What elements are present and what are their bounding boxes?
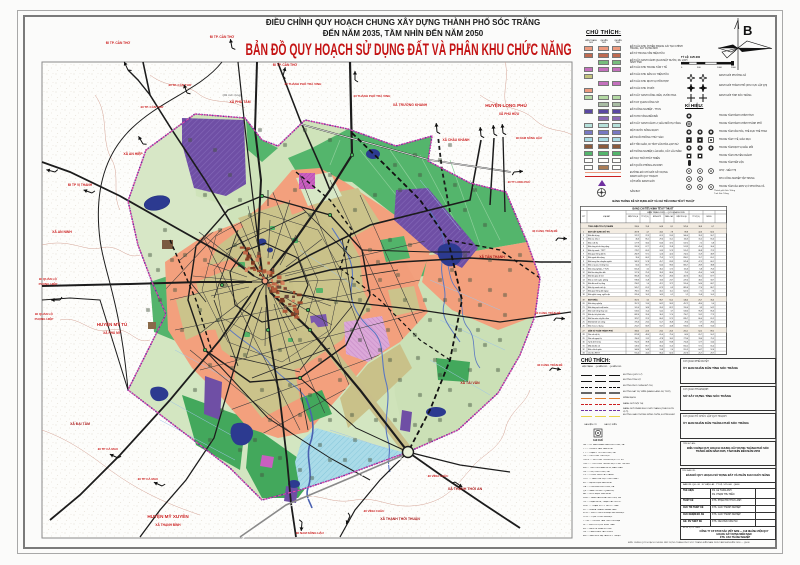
svg-text:66,1: 66,1 bbox=[711, 261, 715, 263]
svg-text:ĐI TP. CẦN THƠ: ĐI TP. CẦN THƠ bbox=[273, 63, 298, 67]
svg-text:23: 23 bbox=[582, 314, 584, 316]
svg-text:ĐI NAM SÔNG HẬU: ĐI NAM SÔNG HẬU bbox=[516, 135, 542, 140]
svg-text:72,5: 72,5 bbox=[711, 250, 715, 252]
svg-text:97,1: 97,1 bbox=[646, 254, 650, 256]
svg-text:M2/NG: M2/NG bbox=[706, 216, 712, 218]
svg-text:159,0: 159,0 bbox=[684, 307, 689, 309]
svg-text:515,2: 515,2 bbox=[684, 250, 689, 252]
svg-text:83,3: 83,3 bbox=[670, 261, 674, 263]
svg-text:86,4: 86,4 bbox=[670, 272, 674, 274]
svg-text:98,3: 98,3 bbox=[670, 303, 674, 305]
svg-text:69,1: 69,1 bbox=[711, 257, 715, 259]
svg-text:10: 10 bbox=[582, 265, 584, 267]
svg-text:64,7: 64,7 bbox=[699, 349, 703, 351]
svg-text:22,6: 22,6 bbox=[646, 331, 650, 333]
svg-text:97,5: 97,5 bbox=[670, 318, 674, 320]
svg-text:1,4: 1,4 bbox=[647, 283, 650, 285]
svg-text:28,3: 28,3 bbox=[670, 276, 674, 278]
svg-text:205,4: 205,4 bbox=[635, 294, 640, 296]
svg-text:ĐI TP VỊ THANH: ĐI TP VỊ THANH bbox=[68, 183, 93, 187]
svg-text:42,0: 42,0 bbox=[670, 254, 674, 256]
svg-text:ĐI CẢNG TRẦN ĐỀ: ĐI CẢNG TRẦN ĐỀ bbox=[535, 310, 560, 315]
svg-text:26,9: 26,9 bbox=[660, 307, 664, 309]
svg-text:82,0: 82,0 bbox=[670, 353, 674, 355]
svg-text:57,2: 57,2 bbox=[670, 257, 674, 259]
svg-text:XÃ PHÚ HỮU: XÃ PHÚ HỮU bbox=[499, 111, 520, 116]
svg-text:47,8: 47,8 bbox=[660, 338, 664, 340]
svg-text:89,7: 89,7 bbox=[646, 345, 650, 347]
svg-text:26,6: 26,6 bbox=[646, 314, 650, 316]
svg-text:Đất an ninh quốc phòng: Đất an ninh quốc phòng bbox=[588, 278, 608, 281]
svg-text:25: 25 bbox=[582, 322, 584, 324]
svg-text:68,9: 68,9 bbox=[646, 325, 650, 327]
svg-text:7,1: 7,1 bbox=[700, 291, 703, 293]
svg-text:39,8: 39,8 bbox=[646, 342, 650, 344]
svg-text:ĐI THÀNH PHỐ TRÀ VINH: ĐI THÀNH PHỐ TRÀ VINH bbox=[285, 81, 322, 86]
svg-text:407,6: 407,6 bbox=[684, 276, 689, 278]
svg-text:81,3: 81,3 bbox=[646, 276, 650, 278]
svg-text:7,2: 7,2 bbox=[700, 242, 703, 244]
svg-text:86,4: 86,4 bbox=[660, 353, 664, 355]
svg-text:805,7: 805,7 bbox=[684, 265, 689, 267]
svg-text:HUYỆN MỸ TÚ: HUYỆN MỸ TÚ bbox=[97, 322, 127, 327]
svg-text:6,8: 6,8 bbox=[712, 242, 715, 244]
svg-text:89,8: 89,8 bbox=[685, 231, 689, 233]
svg-text:46,2: 46,2 bbox=[660, 268, 664, 270]
svg-text:207,6: 207,6 bbox=[684, 353, 689, 355]
svg-text:24,9: 24,9 bbox=[660, 250, 664, 252]
svg-text:865,8: 865,8 bbox=[635, 276, 640, 278]
svg-text:3,5: 3,5 bbox=[647, 299, 650, 301]
svg-text:64,4: 64,4 bbox=[660, 265, 664, 267]
svg-text:69,7: 69,7 bbox=[646, 265, 650, 267]
svg-text:48,4: 48,4 bbox=[699, 303, 703, 305]
svg-text:655,6: 655,6 bbox=[635, 268, 640, 270]
svg-text:85,1: 85,1 bbox=[646, 239, 650, 241]
svg-text:(đã mở rộng): (đã mở rộng) bbox=[223, 93, 242, 97]
svg-text:PHỤNG HIỆP: PHỤNG HIỆP bbox=[39, 281, 58, 286]
svg-text:6,2: 6,2 bbox=[671, 294, 674, 296]
svg-text:ĐI VĨNH CHÂU: ĐI VĨNH CHÂU bbox=[364, 508, 385, 513]
svg-text:94,6: 94,6 bbox=[711, 325, 715, 327]
svg-text:36,2: 36,2 bbox=[699, 276, 703, 278]
svg-text:77,4: 77,4 bbox=[699, 287, 703, 289]
svg-text:13,4: 13,4 bbox=[711, 342, 715, 344]
svg-text:938,6: 938,6 bbox=[635, 279, 640, 281]
svg-text:37,5: 37,5 bbox=[670, 242, 674, 244]
svg-text:ĐẤT XÂY DỰNG ĐÔ THỊ: ĐẤT XÂY DỰNG ĐÔ THỊ bbox=[588, 230, 610, 233]
svg-text:43,5: 43,5 bbox=[646, 353, 650, 355]
svg-text:ĐẤT KHÁC: ĐẤT KHÁC bbox=[588, 298, 599, 301]
svg-text:94,4: 94,4 bbox=[699, 283, 703, 285]
svg-text:17,7: 17,7 bbox=[699, 342, 703, 344]
svg-text:39,3: 39,3 bbox=[660, 272, 664, 274]
svg-text:622,0: 622,0 bbox=[684, 291, 689, 293]
svg-text:45,0: 45,0 bbox=[699, 272, 703, 274]
svg-text:229,4: 229,4 bbox=[684, 279, 689, 281]
svg-text:127,6: 127,6 bbox=[635, 272, 640, 274]
svg-text:30,4: 30,4 bbox=[711, 246, 715, 248]
svg-text:15: 15 bbox=[582, 283, 584, 285]
svg-text:ĐI CẢNG TRẦN ĐỀ: ĐI CẢNG TRẦN ĐỀ bbox=[537, 362, 562, 367]
svg-text:918,3: 918,3 bbox=[684, 325, 689, 327]
svg-text:STT: STT bbox=[582, 216, 585, 218]
svg-text:357,0: 357,0 bbox=[635, 299, 640, 301]
svg-text:62,2: 62,2 bbox=[699, 331, 703, 333]
svg-text:12,6: 12,6 bbox=[660, 254, 664, 256]
svg-text:17: 17 bbox=[582, 291, 584, 293]
svg-text:29,4: 29,4 bbox=[685, 322, 689, 324]
svg-text:20: 20 bbox=[582, 303, 584, 305]
svg-text:Đất cây xanh - TDTT: Đất cây xanh - TDTT bbox=[588, 249, 606, 252]
svg-text:725,3: 725,3 bbox=[635, 322, 640, 324]
svg-text:35,8: 35,8 bbox=[670, 322, 674, 324]
svg-text:39,5: 39,5 bbox=[646, 291, 650, 293]
svg-text:15,1: 15,1 bbox=[670, 239, 674, 241]
svg-text:84,2: 84,2 bbox=[660, 303, 664, 305]
svg-text:915,0: 915,0 bbox=[635, 353, 640, 355]
svg-text:7,8: 7,8 bbox=[671, 231, 674, 233]
svg-text:835,7: 835,7 bbox=[684, 318, 689, 320]
svg-text:254,7: 254,7 bbox=[635, 325, 640, 327]
svg-text:773,6: 773,6 bbox=[684, 338, 689, 340]
svg-text:ĐI CẢNG TRẦN ĐỀ: ĐI CẢNG TRẦN ĐỀ bbox=[532, 228, 557, 233]
svg-text:756,7: 756,7 bbox=[684, 314, 689, 316]
svg-text:48,9: 48,9 bbox=[711, 254, 715, 256]
svg-text:ĐI VĨNH CHÂU: ĐI VĨNH CHÂU bbox=[428, 473, 449, 478]
svg-text:40,3: 40,3 bbox=[660, 342, 664, 344]
svg-text:4: 4 bbox=[583, 242, 584, 244]
svg-text:201,1: 201,1 bbox=[684, 331, 689, 333]
svg-text:782,1: 782,1 bbox=[635, 291, 640, 293]
svg-text:93,8: 93,8 bbox=[670, 342, 674, 344]
svg-text:87,7: 87,7 bbox=[711, 276, 715, 278]
svg-text:3,7: 3,7 bbox=[700, 322, 703, 324]
svg-text:823,8: 823,8 bbox=[635, 334, 640, 336]
svg-text:505,7: 505,7 bbox=[635, 287, 640, 289]
svg-text:15,8: 15,8 bbox=[646, 226, 650, 228]
svg-text:8,1: 8,1 bbox=[671, 226, 674, 228]
svg-text:48,5: 48,5 bbox=[699, 279, 703, 281]
svg-text:742,2: 742,2 bbox=[684, 254, 689, 256]
svg-text:Đất nông nghiệp: Đất nông nghiệp bbox=[588, 302, 602, 305]
svg-text:35,0: 35,0 bbox=[711, 299, 715, 301]
svg-text:44,8: 44,8 bbox=[670, 325, 674, 327]
svg-text:582,9: 582,9 bbox=[635, 261, 640, 263]
svg-text:29: 29 bbox=[582, 338, 584, 340]
svg-text:881,6: 881,6 bbox=[684, 287, 689, 289]
svg-text:Đất sông rạch mặt nước: Đất sông rạch mặt nước bbox=[588, 306, 609, 309]
svg-text:33: 33 bbox=[582, 353, 584, 355]
svg-text:53,2: 53,2 bbox=[699, 314, 703, 316]
svg-text:2: 2 bbox=[583, 235, 584, 237]
svg-text:XÃ TÂN THẠNH: XÃ TÂN THẠNH bbox=[479, 254, 505, 259]
svg-text:ĐI TP. CẦN THƠ: ĐI TP. CẦN THƠ bbox=[169, 83, 192, 87]
svg-text:344,0: 344,0 bbox=[635, 349, 640, 351]
svg-text:96,9: 96,9 bbox=[699, 311, 703, 313]
svg-text:PHỤNG HIỆP: PHỤNG HIỆP bbox=[35, 316, 54, 321]
svg-text:63,6: 63,6 bbox=[660, 242, 664, 244]
svg-text:66,5: 66,5 bbox=[646, 257, 650, 259]
svg-text:33,6: 33,6 bbox=[699, 338, 703, 340]
svg-text:75,9: 75,9 bbox=[660, 257, 664, 259]
svg-text:15,3: 15,3 bbox=[670, 345, 674, 347]
svg-text:85,7: 85,7 bbox=[660, 276, 664, 278]
svg-text:40,1: 40,1 bbox=[660, 291, 664, 293]
svg-text:42,6: 42,6 bbox=[699, 231, 703, 233]
svg-text:58,0: 58,0 bbox=[646, 242, 650, 244]
svg-text:Mật độ dân số: Mật độ dân số bbox=[588, 344, 601, 347]
svg-text:Đất các khu ở: Đất các khu ở bbox=[588, 238, 601, 241]
svg-text:20,3: 20,3 bbox=[670, 331, 674, 333]
svg-text:10,9: 10,9 bbox=[711, 294, 715, 296]
svg-text:22: 22 bbox=[582, 311, 584, 313]
svg-text:Đất kho tàng bến bãi: Đất kho tàng bến bãi bbox=[588, 271, 606, 274]
svg-text:97,1: 97,1 bbox=[699, 345, 703, 347]
svg-text:80,0: 80,0 bbox=[660, 345, 664, 347]
svg-text:500: 500 bbox=[697, 67, 701, 68]
svg-text:146,4: 146,4 bbox=[684, 299, 689, 301]
svg-text:25,7: 25,7 bbox=[699, 299, 703, 301]
svg-text:47,5: 47,5 bbox=[699, 261, 703, 263]
svg-text:39,9: 39,9 bbox=[699, 235, 703, 237]
svg-text:74,5: 74,5 bbox=[646, 338, 650, 340]
svg-text:15,4: 15,4 bbox=[646, 311, 650, 313]
svg-text:29,4: 29,4 bbox=[660, 239, 664, 241]
svg-text:11,1: 11,1 bbox=[670, 291, 673, 293]
svg-text:28,4: 28,4 bbox=[711, 322, 715, 324]
svg-text:81,2: 81,2 bbox=[711, 318, 715, 320]
svg-text:17,5: 17,5 bbox=[670, 268, 674, 270]
svg-text:525,6: 525,6 bbox=[684, 226, 689, 228]
svg-text:81,0: 81,0 bbox=[711, 239, 715, 241]
svg-text:79,4: 79,4 bbox=[670, 334, 674, 336]
svg-text:682,6: 682,6 bbox=[635, 314, 640, 316]
svg-text:13: 13 bbox=[582, 276, 584, 278]
svg-text:HUYỆN LONG PHÚ: HUYỆN LONG PHÚ bbox=[485, 101, 527, 108]
svg-text:Dân số ngoại thị: Dân số ngoại thị bbox=[588, 337, 602, 340]
svg-text:7,6: 7,6 bbox=[712, 291, 715, 293]
svg-text:XÃ CHÂU KHÁNH: XÃ CHÂU KHÁNH bbox=[443, 137, 471, 142]
svg-text:XÃ THẠNH THỚI THUẬN: XÃ THẠNH THỚI THUẬN bbox=[380, 516, 420, 521]
svg-text:28,9: 28,9 bbox=[699, 265, 703, 267]
svg-text:80,5: 80,5 bbox=[660, 318, 664, 320]
svg-text:ĐI TP CÀ MAU: ĐI TP CÀ MAU bbox=[98, 446, 118, 451]
svg-text:13,0: 13,0 bbox=[646, 303, 650, 305]
svg-text:7: 7 bbox=[583, 254, 584, 256]
svg-text:6: 6 bbox=[583, 250, 584, 252]
svg-text:Đất dự trữ phát triển: Đất dự trữ phát triển bbox=[588, 313, 605, 316]
svg-text:XÃ THẠNH BÌNH: XÃ THẠNH BÌNH bbox=[155, 522, 181, 527]
svg-text:58,7: 58,7 bbox=[711, 279, 715, 281]
svg-text:65,4: 65,4 bbox=[711, 345, 715, 347]
svg-text:25,7: 25,7 bbox=[699, 353, 703, 355]
svg-text:518,0: 518,0 bbox=[684, 311, 689, 313]
svg-text:12: 12 bbox=[582, 272, 584, 274]
svg-text:18: 18 bbox=[582, 294, 584, 296]
svg-text:16,9: 16,9 bbox=[646, 294, 650, 296]
svg-text:79,5: 79,5 bbox=[711, 338, 715, 340]
svg-text:566,0: 566,0 bbox=[684, 235, 689, 237]
svg-text:37,2: 37,2 bbox=[670, 283, 674, 285]
svg-text:Dân số nội thị: Dân số nội thị bbox=[588, 333, 600, 336]
svg-text:925,8: 925,8 bbox=[684, 261, 689, 263]
svg-text:26: 26 bbox=[582, 325, 584, 327]
svg-text:1: 1 bbox=[583, 231, 584, 233]
svg-text:86,7: 86,7 bbox=[660, 299, 664, 301]
svg-text:952,3: 952,3 bbox=[635, 342, 640, 344]
svg-text:Đất công nghiệp - TTCN: Đất công nghiệp - TTCN bbox=[588, 267, 609, 270]
svg-text:358,0: 358,0 bbox=[635, 331, 640, 333]
svg-text:57,8: 57,8 bbox=[646, 261, 650, 263]
svg-text:48,0: 48,0 bbox=[646, 334, 650, 336]
svg-text:76,3: 76,3 bbox=[711, 268, 715, 270]
svg-text:19: 19 bbox=[582, 299, 584, 301]
svg-text:XÃ ĐẠI TÂM: XÃ ĐẠI TÂM bbox=[70, 421, 90, 426]
svg-text:34,6: 34,6 bbox=[646, 307, 650, 309]
svg-text:45,4: 45,4 bbox=[699, 246, 703, 248]
svg-text:Đất dân dụng: Đất dân dụng bbox=[588, 234, 599, 237]
svg-text:4,7: 4,7 bbox=[647, 231, 650, 233]
svg-text:45,7: 45,7 bbox=[660, 261, 664, 263]
svg-text:116,3: 116,3 bbox=[684, 239, 688, 241]
svg-text:67,3: 67,3 bbox=[660, 287, 664, 289]
svg-text:42,9: 42,9 bbox=[660, 246, 664, 248]
svg-text:23,2: 23,2 bbox=[660, 331, 664, 333]
svg-text:77,3: 77,3 bbox=[711, 314, 715, 316]
svg-text:29,7: 29,7 bbox=[711, 353, 715, 355]
svg-text:84,0: 84,0 bbox=[685, 334, 689, 336]
svg-text:31,7: 31,7 bbox=[699, 257, 703, 259]
svg-text:518,2: 518,2 bbox=[635, 311, 640, 313]
svg-text:31,2: 31,2 bbox=[699, 239, 703, 241]
svg-text:23,2: 23,2 bbox=[646, 322, 650, 324]
svg-text:Đất công trình công cộng: Đất công trình công cộng bbox=[588, 245, 609, 248]
svg-text:6,7: 6,7 bbox=[712, 226, 715, 228]
svg-text:122,2: 122,2 bbox=[635, 235, 640, 237]
svg-text:Đất trung tâm chuyên ngành: Đất trung tâm chuyên ngành bbox=[588, 260, 612, 263]
svg-text:0: 0 bbox=[681, 67, 683, 68]
svg-text:24: 24 bbox=[582, 318, 584, 320]
svg-text:XÃ TRƯỜNG KHANH: XÃ TRƯỜNG KHANH bbox=[393, 102, 428, 107]
svg-text:79,9: 79,9 bbox=[685, 272, 689, 274]
svg-text:HIỆN TRẠNG 2015 — QUY HOẠCH 20: HIỆN TRẠNG 2015 — QUY HOẠCH 2035 bbox=[647, 211, 685, 214]
svg-text:22,9: 22,9 bbox=[646, 235, 650, 237]
svg-text:61,2: 61,2 bbox=[670, 299, 674, 301]
svg-text:86,8: 86,8 bbox=[699, 250, 703, 252]
svg-text:115,6: 115,6 bbox=[684, 268, 688, 270]
svg-text:6,3: 6,3 bbox=[671, 287, 674, 289]
svg-text:60,4: 60,4 bbox=[636, 265, 640, 267]
svg-text:85,6: 85,6 bbox=[711, 311, 715, 313]
svg-text:XÃ PHÚ MỸ: XÃ PHÚ MỸ bbox=[103, 330, 122, 335]
svg-text:13,8: 13,8 bbox=[660, 349, 664, 351]
svg-text:36,9: 36,9 bbox=[660, 314, 664, 316]
svg-text:9,4: 9,4 bbox=[712, 303, 715, 305]
svg-text:16: 16 bbox=[582, 287, 584, 289]
svg-text:323,7: 323,7 bbox=[635, 318, 640, 320]
svg-text:XÃ THẠNH THỚI AN: XÃ THẠNH THỚI AN bbox=[448, 486, 483, 491]
svg-text:282,9: 282,9 bbox=[635, 254, 640, 256]
svg-text:BẢNG CHỈ TIÊU KINH TẾ KỸ THUẬT: BẢNG CHỈ TIÊU KINH TẾ KỸ THUẬT bbox=[633, 207, 674, 210]
svg-text:ĐI NAM SÔNG HẬU: ĐI NAM SÔNG HẬU bbox=[296, 530, 324, 535]
svg-text:Đất nuôi trồng thủy sản: Đất nuôi trồng thủy sản bbox=[588, 310, 608, 313]
svg-text:25,3: 25,3 bbox=[646, 272, 650, 274]
svg-text:XÃ AN NINH: XÃ AN NINH bbox=[52, 229, 72, 234]
svg-text:32: 32 bbox=[582, 349, 584, 351]
svg-text:TỔNG DIỆN TÍCH TỰ NHIÊN: TỔNG DIỆN TÍCH TỰ NHIÊN bbox=[588, 225, 614, 228]
svg-text:54,8: 54,8 bbox=[646, 349, 650, 351]
svg-text:Tỷ lệ đô thị hóa: Tỷ lệ đô thị hóa bbox=[588, 341, 602, 344]
svg-text:Đất giao thông đối ngoại: Đất giao thông đối ngoại bbox=[588, 290, 609, 293]
svg-text:Chỉ tiêu HTKT: Chỉ tiêu HTKT bbox=[588, 352, 601, 355]
svg-text:54,2: 54,2 bbox=[660, 311, 664, 313]
svg-text:810,2: 810,2 bbox=[684, 345, 689, 347]
svg-text:43,5: 43,5 bbox=[660, 231, 664, 233]
svg-text:ĐI TP. CẦN THƠ: ĐI TP. CẦN THƠ bbox=[210, 35, 235, 39]
svg-text:497,8: 497,8 bbox=[635, 231, 640, 233]
svg-text:778,7: 778,7 bbox=[635, 250, 640, 252]
svg-text:94,2: 94,2 bbox=[711, 307, 715, 309]
svg-text:31,8: 31,8 bbox=[670, 246, 674, 248]
svg-text:69,5: 69,5 bbox=[646, 250, 650, 252]
svg-text:Đất bãi bồi ven sông: Đất bãi bồi ven sông bbox=[588, 321, 605, 324]
svg-text:6,8: 6,8 bbox=[700, 268, 703, 270]
svg-text:Đất cây xanh cách ly: Đất cây xanh cách ly bbox=[588, 286, 605, 289]
svg-text:457,2: 457,2 bbox=[684, 303, 689, 305]
svg-text:42,1: 42,1 bbox=[660, 283, 664, 285]
svg-text:17,4: 17,4 bbox=[670, 314, 674, 316]
svg-text:51,7: 51,7 bbox=[660, 322, 664, 324]
svg-text:38,8: 38,8 bbox=[711, 265, 715, 267]
svg-text:DÂN SỐ TOÀN THÀNH PHỐ: DÂN SỐ TOÀN THÀNH PHỐ bbox=[588, 330, 613, 333]
svg-text:3,2: 3,2 bbox=[647, 268, 650, 270]
svg-text:46,6: 46,6 bbox=[636, 239, 640, 241]
svg-text:68,7: 68,7 bbox=[711, 283, 715, 285]
svg-text:9: 9 bbox=[583, 261, 584, 263]
svg-text:202,6: 202,6 bbox=[635, 246, 640, 248]
svg-text:11: 11 bbox=[583, 268, 585, 270]
svg-text:14: 14 bbox=[582, 279, 584, 281]
svg-text:64,8: 64,8 bbox=[660, 226, 664, 228]
svg-text:3,7: 3,7 bbox=[671, 311, 674, 313]
svg-text:23,7: 23,7 bbox=[670, 279, 674, 281]
svg-text:Đất tôn giáo di tích: Đất tôn giáo di tích bbox=[588, 275, 604, 278]
svg-text:15,8: 15,8 bbox=[699, 294, 703, 296]
svg-text:ĐI TP. CẦN THƠ: ĐI TP. CẦN THƠ bbox=[106, 41, 131, 45]
svg-text:80,0: 80,0 bbox=[699, 318, 703, 320]
svg-text:3: 3 bbox=[583, 239, 584, 241]
svg-text:177,9: 177,9 bbox=[635, 242, 640, 244]
svg-text:ĐI QUẢN LỘ: ĐI QUẢN LỘ bbox=[35, 311, 53, 316]
svg-text:67,7: 67,7 bbox=[646, 246, 650, 248]
svg-text:57,3: 57,3 bbox=[670, 250, 674, 252]
svg-text:Đất đầu mối hạ tầng: Đất đầu mối hạ tầng bbox=[588, 282, 605, 285]
svg-text:34,3: 34,3 bbox=[660, 294, 664, 296]
svg-text:31: 31 bbox=[582, 345, 584, 347]
svg-text:ĐI THÀNH PHỐ TRÀ VINH: ĐI THÀNH PHỐ TRÀ VINH bbox=[354, 93, 391, 98]
svg-text:8: 8 bbox=[583, 257, 584, 259]
svg-text:357,5: 357,5 bbox=[635, 303, 640, 305]
svg-text:61,5: 61,5 bbox=[646, 287, 650, 289]
svg-text:18,3: 18,3 bbox=[660, 279, 664, 281]
svg-text:HUYỆN MỸ XUYÊN: HUYỆN MỸ XUYÊN bbox=[147, 512, 189, 519]
svg-text:XÃ AN HIỆP: XÃ AN HIỆP bbox=[123, 151, 143, 156]
svg-text:65,0: 65,0 bbox=[660, 334, 664, 336]
svg-text:27: 27 bbox=[582, 331, 584, 333]
svg-text:537,2: 537,2 bbox=[684, 242, 689, 244]
svg-text:21: 21 bbox=[582, 307, 584, 309]
